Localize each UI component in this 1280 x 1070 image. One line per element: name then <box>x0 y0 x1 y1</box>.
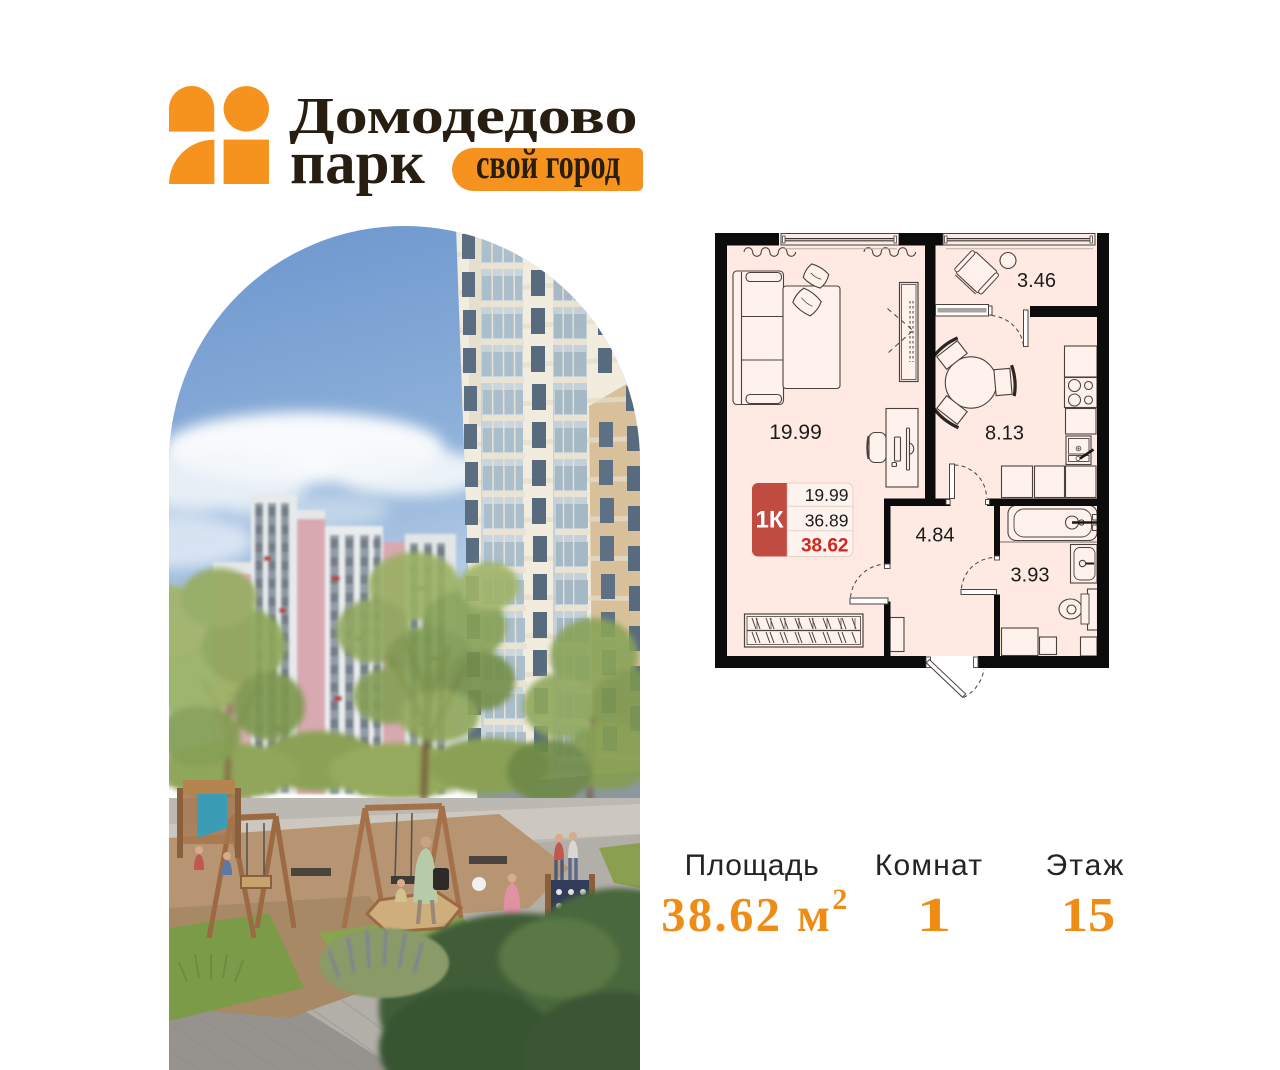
svg-text:19.99: 19.99 <box>769 421 822 444</box>
svg-text:19.99: 19.99 <box>805 485 849 505</box>
svg-text:36.89: 36.89 <box>805 511 849 531</box>
svg-text:1К: 1К <box>756 507 784 534</box>
svg-text:38.62: 38.62 <box>801 536 849 557</box>
svg-text:4.84: 4.84 <box>916 525 955 547</box>
svg-text:3.46: 3.46 <box>1017 270 1056 292</box>
svg-text:8.13: 8.13 <box>985 423 1024 445</box>
svg-text:3.93: 3.93 <box>1011 565 1050 587</box>
